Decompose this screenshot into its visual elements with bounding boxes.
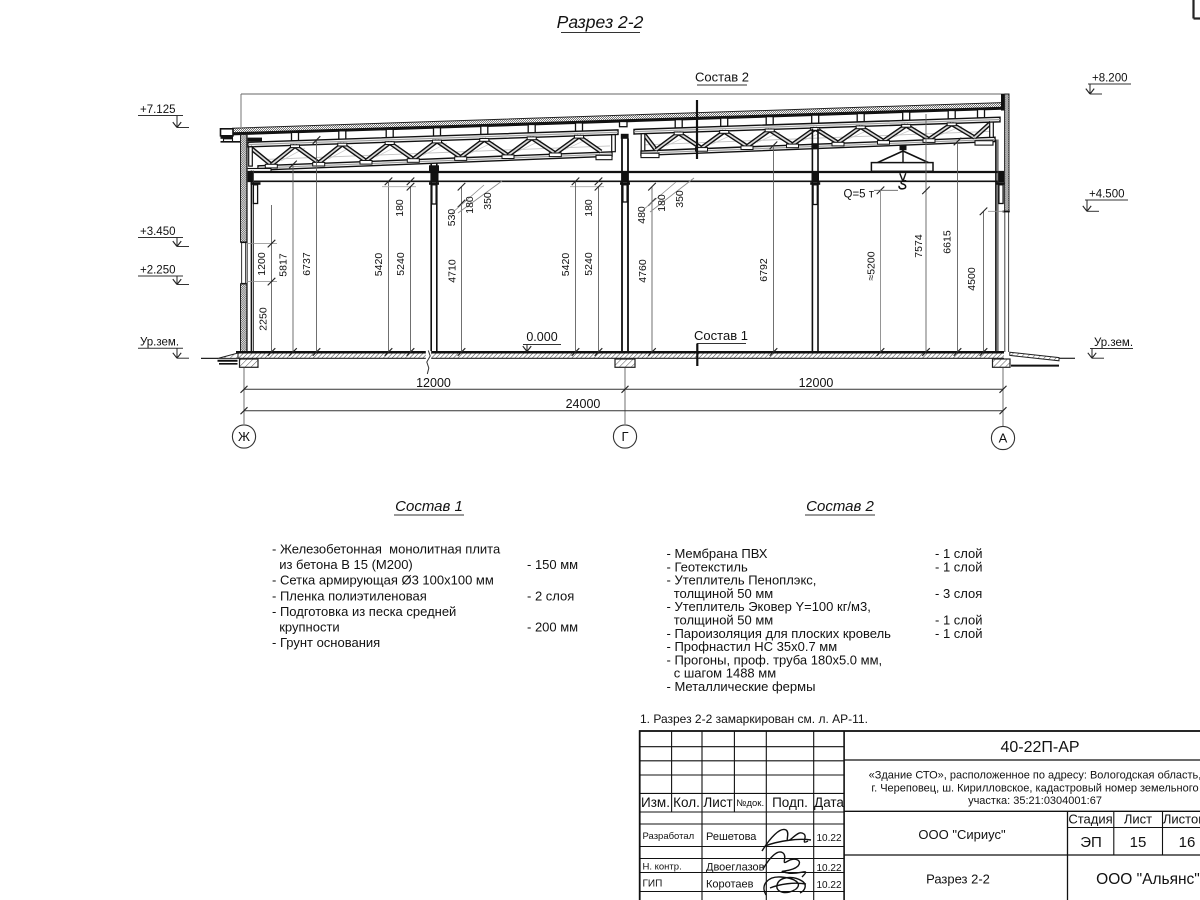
svg-text:Решетова: Решетова (706, 831, 757, 843)
svg-text:7574: 7574 (913, 234, 925, 258)
svg-text:- Грунт основания: - Грунт основания (272, 635, 380, 650)
svg-text:5240: 5240 (395, 252, 407, 276)
svg-text:А: А (999, 431, 1008, 446)
svg-text:участка: 35:21:0304001:67: участка: 35:21:0304001:67 (968, 795, 1102, 807)
svg-text:Q=5 т: Q=5 т (844, 189, 875, 201)
svg-text:г. Череповец, ш. Кирилловское,: г. Череповец, ш. Кирилловское, кадастров… (871, 783, 1198, 795)
svg-text:- Железобетонная монолитная п: - Железобетонная монолитная плита (272, 542, 501, 557)
svg-text:Лист: Лист (703, 795, 732, 810)
svg-text:Стадия: Стадия (1068, 812, 1112, 827)
svg-text:4710: 4710 (447, 259, 459, 283)
svg-text:5420: 5420 (373, 253, 385, 277)
svg-text:Разрез 2-2: Разрез 2-2 (557, 12, 644, 32)
svg-text:ООО "Сириус": ООО "Сириус" (918, 827, 1006, 842)
svg-text:Ж: Ж (238, 429, 250, 444)
svg-text:16: 16 (1179, 834, 1196, 851)
svg-text:5817: 5817 (278, 253, 290, 277)
svg-text:Коротаев: Коротаев (706, 879, 754, 891)
svg-text:+3.450: +3.450 (140, 226, 176, 238)
svg-text:Двоеглазов: Двоеглазов (706, 862, 765, 874)
svg-text:- 1 слой: - 1 слой (935, 626, 983, 641)
svg-text:из бетона В 15 (М200): из бетона В 15 (М200) (272, 557, 413, 572)
svg-text:Дата: Дата (814, 795, 844, 810)
svg-text:180: 180 (394, 199, 406, 217)
svg-text:10.22: 10.22 (816, 880, 841, 891)
svg-text:10.22: 10.22 (816, 863, 841, 874)
svg-text:Ур.зем.: Ур.зем. (1094, 337, 1133, 349)
svg-text:- 200 мм: - 200 мм (527, 620, 578, 635)
svg-text:крупности: крупности (272, 620, 340, 635)
svg-text:Г: Г (621, 429, 628, 444)
svg-text:Н. контр.: Н. контр. (643, 862, 682, 873)
svg-text:Состав 2: Состав 2 (695, 70, 749, 85)
svg-text:24000: 24000 (566, 397, 601, 411)
svg-text:5420: 5420 (560, 253, 572, 277)
svg-text:180: 180 (583, 199, 595, 217)
svg-text:Изм.: Изм. (641, 795, 670, 810)
svg-text:4500: 4500 (966, 267, 978, 291)
svg-text:≈5200: ≈5200 (866, 251, 878, 280)
svg-text:1. Разрез 2-2 замаркирован см.: 1. Разрез 2-2 замаркирован см. л. АР-11. (640, 712, 868, 726)
svg-text:Кол.: Кол. (673, 795, 700, 810)
svg-text:+2.250: +2.250 (140, 265, 176, 277)
svg-text:Листов: Листов (1163, 812, 1200, 827)
svg-text:+4.500: +4.500 (1089, 189, 1125, 201)
svg-text:- 1 слой: - 1 слой (935, 559, 983, 574)
svg-text:- Пленка полиэтиленовая: - Пленка полиэтиленовая (272, 588, 427, 603)
svg-text:ЭП: ЭП (1080, 834, 1102, 851)
svg-text:12000: 12000 (799, 376, 834, 390)
svg-text:4760: 4760 (637, 259, 649, 283)
svg-text:1200: 1200 (256, 252, 268, 276)
svg-text:- 3 слоя: - 3 слоя (935, 586, 982, 601)
svg-text:- Металлические фермы: - Металлические фермы (667, 679, 816, 694)
svg-text:Разрез 2-2: Разрез 2-2 (926, 872, 990, 887)
svg-text:15: 15 (1130, 834, 1147, 851)
svg-text:6737: 6737 (301, 252, 313, 276)
svg-text:6792: 6792 (758, 258, 770, 282)
svg-text:ООО "Альянс": ООО "Альянс" (1096, 871, 1200, 888)
svg-text:- Сетка армирующая Ø3 100х100: - Сетка армирующая Ø3 100х100 мм (272, 573, 494, 588)
svg-text:- Подготовка из песка средней: - Подготовка из песка средней (272, 604, 456, 619)
svg-text:2250: 2250 (258, 307, 270, 331)
svg-text:5240: 5240 (583, 252, 595, 276)
svg-text:180: 180 (656, 194, 668, 212)
svg-text:40-22П-АР: 40-22П-АР (1000, 739, 1079, 756)
svg-text:№док.: №док. (736, 798, 764, 809)
svg-text:Состав 2: Состав 2 (806, 498, 874, 515)
svg-text:Разработал: Разработал (643, 831, 695, 842)
svg-text:480: 480 (636, 206, 648, 224)
svg-text:+8.200: +8.200 (1092, 73, 1128, 85)
svg-text:180: 180 (464, 196, 476, 214)
svg-text:Состав 1: Состав 1 (395, 498, 463, 515)
svg-text:350: 350 (674, 190, 686, 208)
svg-text:Подп.: Подп. (772, 795, 808, 810)
svg-text:«Здание СТО», расположенное по: «Здание СТО», расположенное по адресу: В… (869, 770, 1200, 782)
svg-text:ГИП: ГИП (643, 879, 663, 890)
svg-text:12000: 12000 (416, 376, 451, 390)
svg-text:Состав 1: Состав 1 (694, 328, 748, 343)
svg-text:6615: 6615 (942, 230, 954, 254)
svg-text:+7.125: +7.125 (140, 104, 176, 116)
svg-text:10.22: 10.22 (816, 833, 841, 844)
svg-text:Ур.зем.: Ур.зем. (140, 337, 179, 349)
svg-text:350: 350 (482, 192, 494, 210)
svg-text:- 150 мм: - 150 мм (527, 557, 578, 572)
svg-text:- 2 слоя: - 2 слоя (527, 588, 574, 603)
svg-text:530: 530 (446, 209, 458, 227)
svg-text:0.000: 0.000 (526, 330, 557, 344)
svg-text:Лист: Лист (1124, 812, 1152, 827)
